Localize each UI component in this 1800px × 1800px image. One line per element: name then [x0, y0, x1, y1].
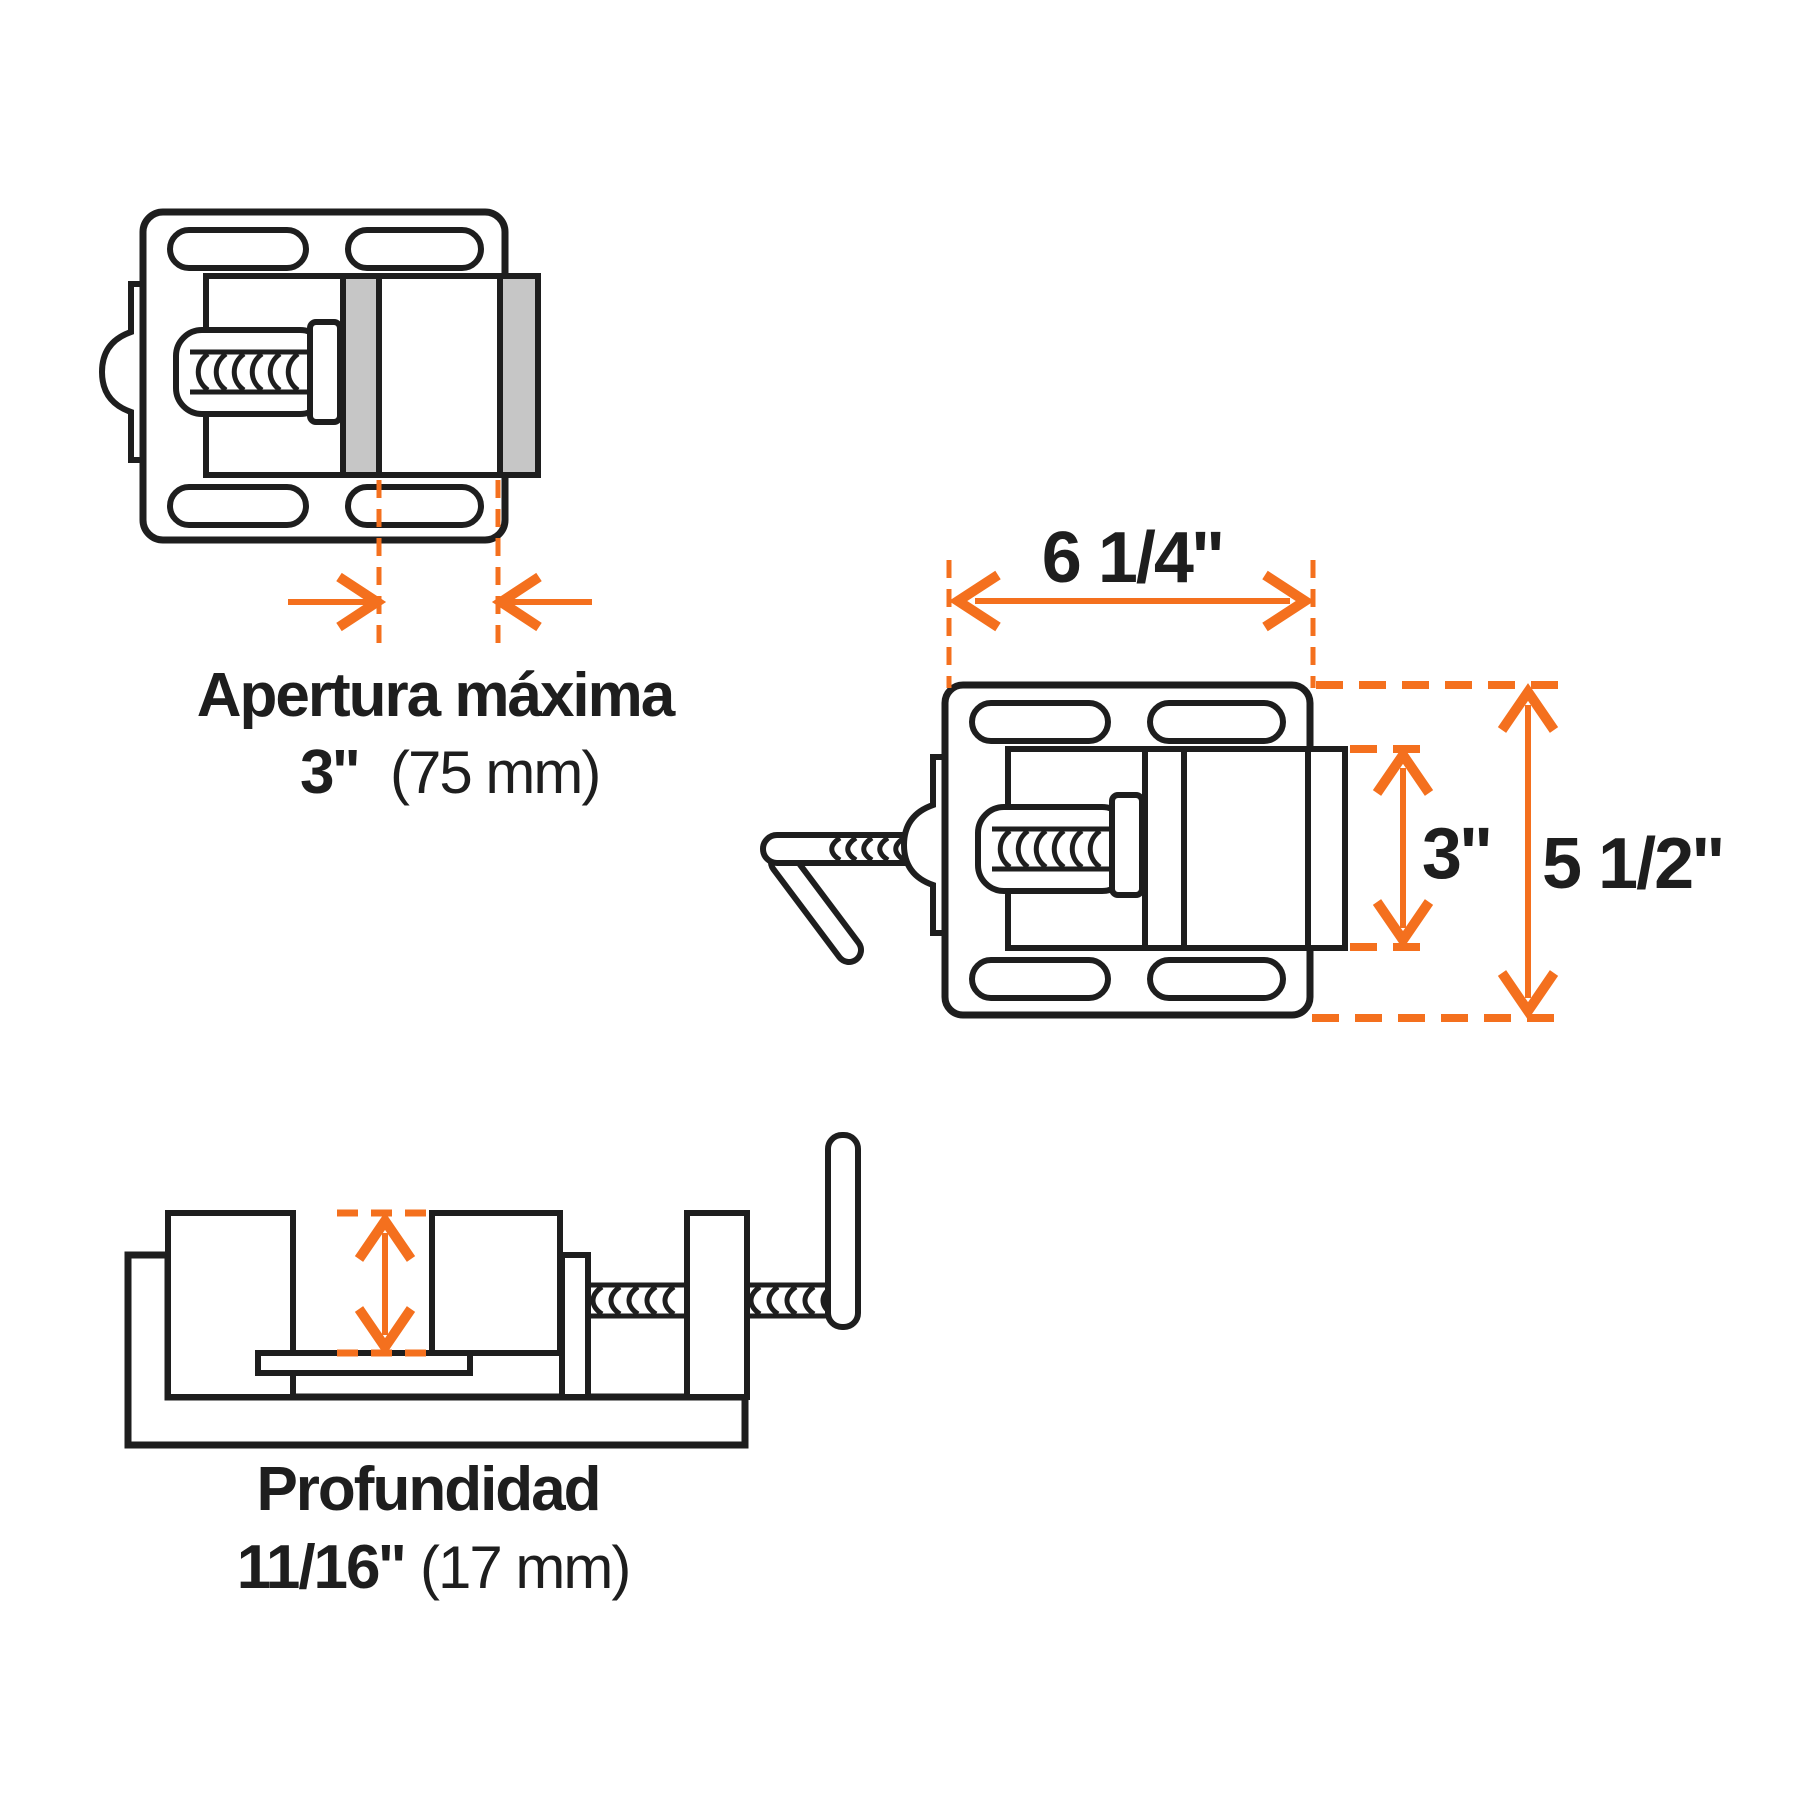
top-view-vise: Apertura máxima 3'' (75 mm): [102, 212, 676, 807]
mount-slot: [972, 960, 1108, 998]
side-view-vise: Profundidad 11/16'' (17 mm): [128, 1135, 858, 1602]
mount-slot: [972, 703, 1108, 741]
width-dimension: 6 1/4'': [949, 518, 1313, 688]
height-dimension: 5 1/2'': [1312, 685, 1722, 1018]
mount-slot: [1150, 703, 1283, 741]
screw-collar: [1112, 795, 1142, 895]
opening-dimension: 3'': [1350, 749, 1490, 947]
diagram-canvas: Apertura máxima 3'' (75 mm): [0, 0, 1800, 1800]
screw-collar: [310, 322, 340, 422]
top-view-vise-with-handle: 6 1/4'' 3'' 5 1/2'': [763, 518, 1722, 1018]
mount-slot: [348, 487, 481, 525]
mount-slot: [1150, 960, 1283, 998]
profundidad-metric: (17 mm): [420, 1534, 629, 1601]
profundidad-value: 11/16'': [237, 1533, 404, 1602]
opening-arrows: [288, 577, 592, 627]
fixed-jaw: [500, 276, 538, 475]
mount-slot: [348, 230, 481, 268]
apertura-metric: (75 mm): [390, 739, 599, 806]
screw-bracket: [562, 1255, 588, 1397]
height-dimension-label: 5 1/2'': [1542, 824, 1722, 904]
product-dimensions-diagram: Apertura máxima 3'' (75 mm): [0, 0, 1800, 1800]
width-dimension-label: 6 1/4'': [1042, 518, 1222, 598]
mount-slot: [170, 230, 306, 268]
opening-dimension-label: 3'': [1422, 814, 1490, 894]
movable-jaw: [343, 276, 379, 475]
fixed-jaw: [1308, 749, 1345, 948]
handle-rod: [828, 1135, 858, 1327]
end-support: [687, 1213, 747, 1397]
profundidad-title: Profundidad: [256, 1455, 599, 1524]
apertura-value: 3'': [300, 738, 358, 807]
vise-left-bump: [102, 284, 143, 460]
mount-slot: [170, 487, 306, 525]
movable-jaw: [1145, 749, 1184, 948]
apertura-title: Apertura máxima: [197, 661, 676, 730]
depth-dimension: [337, 1213, 434, 1353]
movable-jaw-block: [432, 1213, 560, 1353]
vise-left-bump: [904, 757, 945, 933]
